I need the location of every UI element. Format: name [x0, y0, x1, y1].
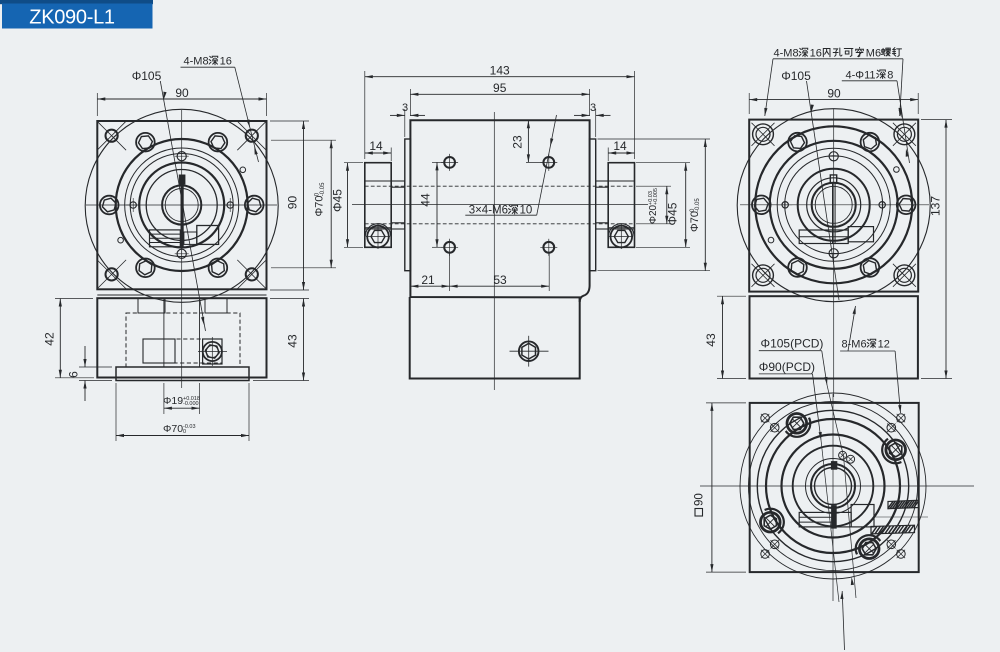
svg-text:ZK090-L1: ZK090-L1: [29, 6, 115, 28]
svg-text:90: 90: [827, 86, 841, 100]
svg-text:8-M6: 8-M6: [842, 339, 867, 351]
svg-text:23: 23: [511, 135, 525, 149]
svg-text:44: 44: [419, 193, 433, 207]
svg-text:M6: M6: [866, 48, 881, 60]
svg-text:Φ20: Φ20: [648, 204, 659, 224]
svg-text:4-: 4-: [846, 69, 856, 81]
svg-text:143: 143: [490, 64, 510, 78]
svg-text:+0.005: +0.005: [653, 188, 659, 205]
svg-text:3: 3: [590, 102, 596, 114]
svg-text:3: 3: [402, 102, 408, 114]
svg-text:Φ105: Φ105: [132, 69, 162, 83]
svg-text:0: 0: [183, 429, 186, 435]
svg-text:-0.000: -0.000: [183, 401, 199, 407]
svg-text:3×4-M6: 3×4-M6: [469, 204, 508, 216]
svg-text:43: 43: [286, 334, 300, 348]
svg-text:53: 53: [493, 273, 507, 287]
svg-text:Φ105: Φ105: [781, 69, 811, 83]
svg-text:Φ11: Φ11: [855, 69, 875, 81]
svg-text:12: 12: [878, 339, 890, 351]
svg-text:90: 90: [175, 86, 189, 100]
svg-text:21: 21: [421, 273, 435, 287]
svg-text:16: 16: [220, 56, 232, 68]
svg-text:Φ70: Φ70: [314, 195, 326, 216]
svg-text:10: 10: [520, 204, 533, 216]
svg-text:Φ90(PCD): Φ90(PCD): [759, 360, 815, 374]
svg-text:42: 42: [43, 332, 57, 346]
svg-text:8: 8: [887, 69, 893, 81]
svg-text:Φ70: Φ70: [163, 423, 183, 435]
svg-text:Φ19: Φ19: [163, 395, 183, 407]
svg-text:4-M8: 4-M8: [184, 56, 209, 68]
svg-text:14: 14: [369, 139, 383, 153]
svg-text:4-M8: 4-M8: [774, 48, 799, 60]
svg-text:16: 16: [810, 48, 822, 60]
svg-text:Φ105(PCD): Φ105(PCD): [761, 337, 824, 351]
svg-text:90: 90: [286, 196, 300, 210]
svg-text:14: 14: [613, 139, 627, 153]
svg-text:43: 43: [704, 333, 718, 347]
svg-text:Φ45: Φ45: [331, 189, 345, 212]
svg-text:137: 137: [929, 196, 943, 216]
svg-text:-0.05: -0.05: [695, 198, 701, 212]
svg-text:Φ70: Φ70: [689, 211, 701, 232]
svg-text:6: 6: [67, 371, 81, 378]
svg-text:-0.05: -0.05: [320, 182, 326, 196]
svg-text:90: 90: [694, 493, 706, 506]
svg-text:95: 95: [493, 81, 507, 95]
svg-text:Φ45: Φ45: [666, 202, 680, 225]
